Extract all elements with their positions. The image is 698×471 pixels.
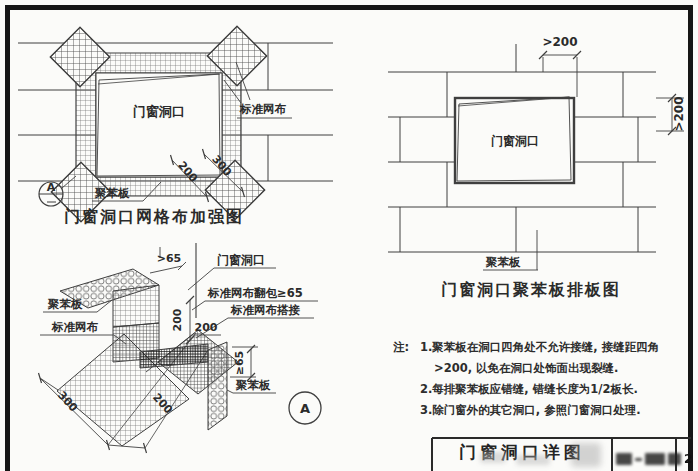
notes: 注: 1.聚苯板在洞口四角处不允许接缝, 接缝距四角 >200, 以免在洞口处饰… bbox=[393, 337, 693, 421]
detail-marker-letter: A bbox=[47, 181, 56, 194]
layout-title: 门窗洞口聚苯板排板图 bbox=[441, 280, 621, 299]
notes-label: 注: bbox=[393, 337, 420, 358]
opening-label: 门窗洞口 bbox=[491, 134, 539, 148]
reinforcement-title: 门窗洞口网格布加强图 bbox=[64, 207, 244, 226]
foam-strip-right bbox=[208, 342, 227, 430]
dim-right-label: >200 bbox=[672, 96, 686, 131]
note-line-1b: >200, 以免在洞口处饰面出现裂缝. bbox=[434, 358, 693, 379]
board-label: 聚苯板 bbox=[485, 255, 521, 269]
lap-label: 标准网布搭接 bbox=[230, 303, 301, 317]
mesh-label: 标准网布 bbox=[239, 102, 287, 116]
reinforcement-diagram: 门窗洞口 标准网布 聚苯板 200 300 A 门窗洞口网格布加强图 bbox=[18, 26, 333, 226]
watermark-smudge bbox=[516, 455, 550, 465]
note-line-1: 1.聚苯板在洞口四角处不允许接缝, 接缝距四角 bbox=[420, 337, 659, 358]
board-label-left: 聚苯板 bbox=[47, 297, 83, 311]
opening-face bbox=[96, 73, 222, 177]
watermark-smudge bbox=[480, 452, 506, 463]
dim-r65-label: ≥65 bbox=[233, 351, 246, 376]
board-layout-diagram: 门窗洞口 >200 >200 聚苯板 门窗洞口聚苯板排板图 bbox=[388, 35, 686, 299]
title-block-number: 2 bbox=[616, 450, 696, 468]
note-line-3: 3.除门窗外的其它洞口, 参照门窗洞口处理. bbox=[420, 400, 693, 421]
detail-circle-letter: A bbox=[300, 401, 310, 416]
drawing-sheet: 门窗洞口 标准网布 聚苯板 200 300 A 门窗洞口网格布加强图 门窗洞口 … bbox=[0, 0, 698, 471]
obscured-glyph bbox=[616, 453, 632, 465]
dim-top-lines bbox=[543, 55, 577, 97]
dim-top-label: >200 bbox=[542, 35, 577, 49]
mesh-band-upper bbox=[113, 285, 159, 327]
obscured-glyph bbox=[645, 453, 665, 465]
board-label: 聚苯板 bbox=[94, 186, 130, 200]
obscured-glyph bbox=[635, 458, 642, 461]
dim-v200-label: 200 bbox=[171, 308, 184, 331]
dim-top65-label: >65 bbox=[157, 252, 182, 265]
opening-label: 门窗洞口 bbox=[133, 104, 185, 119]
wrap-label: 标准网布翻包≥65 bbox=[207, 286, 303, 300]
note-line-2: 2.每排聚苯板应错缝, 错缝长度为1/2板长. bbox=[420, 379, 693, 400]
corner-detail-diagram: 门窗洞口 标准网布翻包≥65 标准网布搭接 聚苯板 标准网布 聚苯板 >65 2… bbox=[39, 243, 322, 453]
board-label-right: 聚苯板 bbox=[235, 378, 271, 392]
dim-h200-label: 200 bbox=[195, 321, 218, 334]
mesh-label-left: 标准网布 bbox=[51, 320, 99, 334]
watermark-smudge bbox=[571, 443, 601, 467]
obscured-glyph bbox=[668, 453, 681, 465]
opening-label: 门窗洞口 bbox=[217, 253, 265, 267]
drawing-number-suffix: 2 bbox=[684, 452, 692, 466]
